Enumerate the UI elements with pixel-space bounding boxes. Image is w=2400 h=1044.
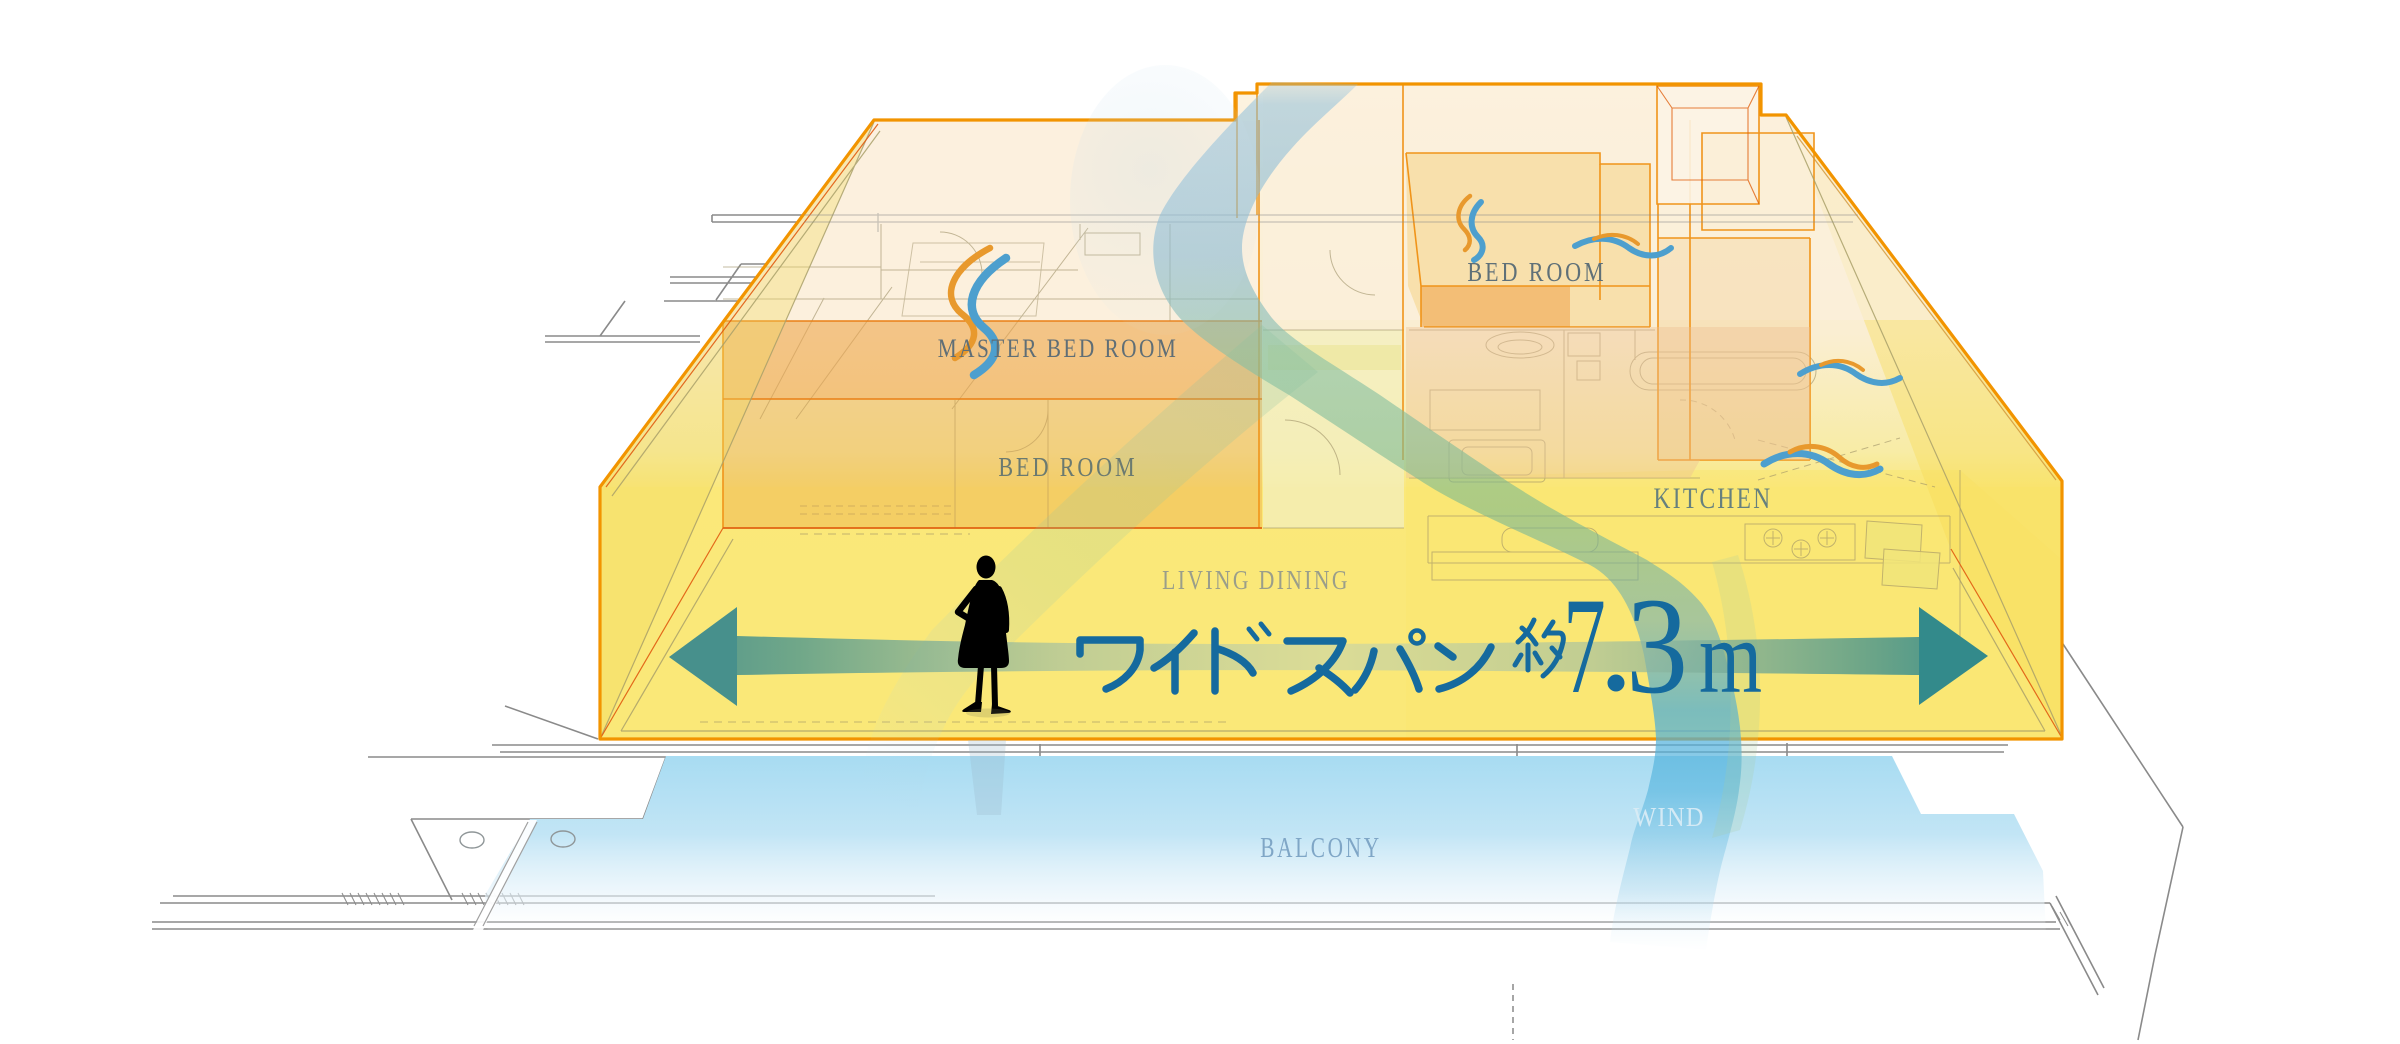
svg-text:KITCHEN: KITCHEN — [1653, 481, 1772, 514]
svg-text:7: 7 — [1563, 569, 1606, 722]
svg-text:BED ROOM: BED ROOM — [998, 453, 1137, 483]
svg-text:LIVING DINING: LIVING DINING — [1162, 566, 1350, 596]
svg-text:MASTER BED ROOM: MASTER BED ROOM — [938, 335, 1179, 363]
svg-text:WIND: WIND — [1633, 802, 1705, 832]
svg-text:BED ROOM: BED ROOM — [1467, 258, 1606, 288]
svg-text:BALCONY: BALCONY — [1260, 833, 1381, 863]
svg-text:3: 3 — [1626, 570, 1688, 722]
svg-text:m: m — [1699, 601, 1762, 716]
